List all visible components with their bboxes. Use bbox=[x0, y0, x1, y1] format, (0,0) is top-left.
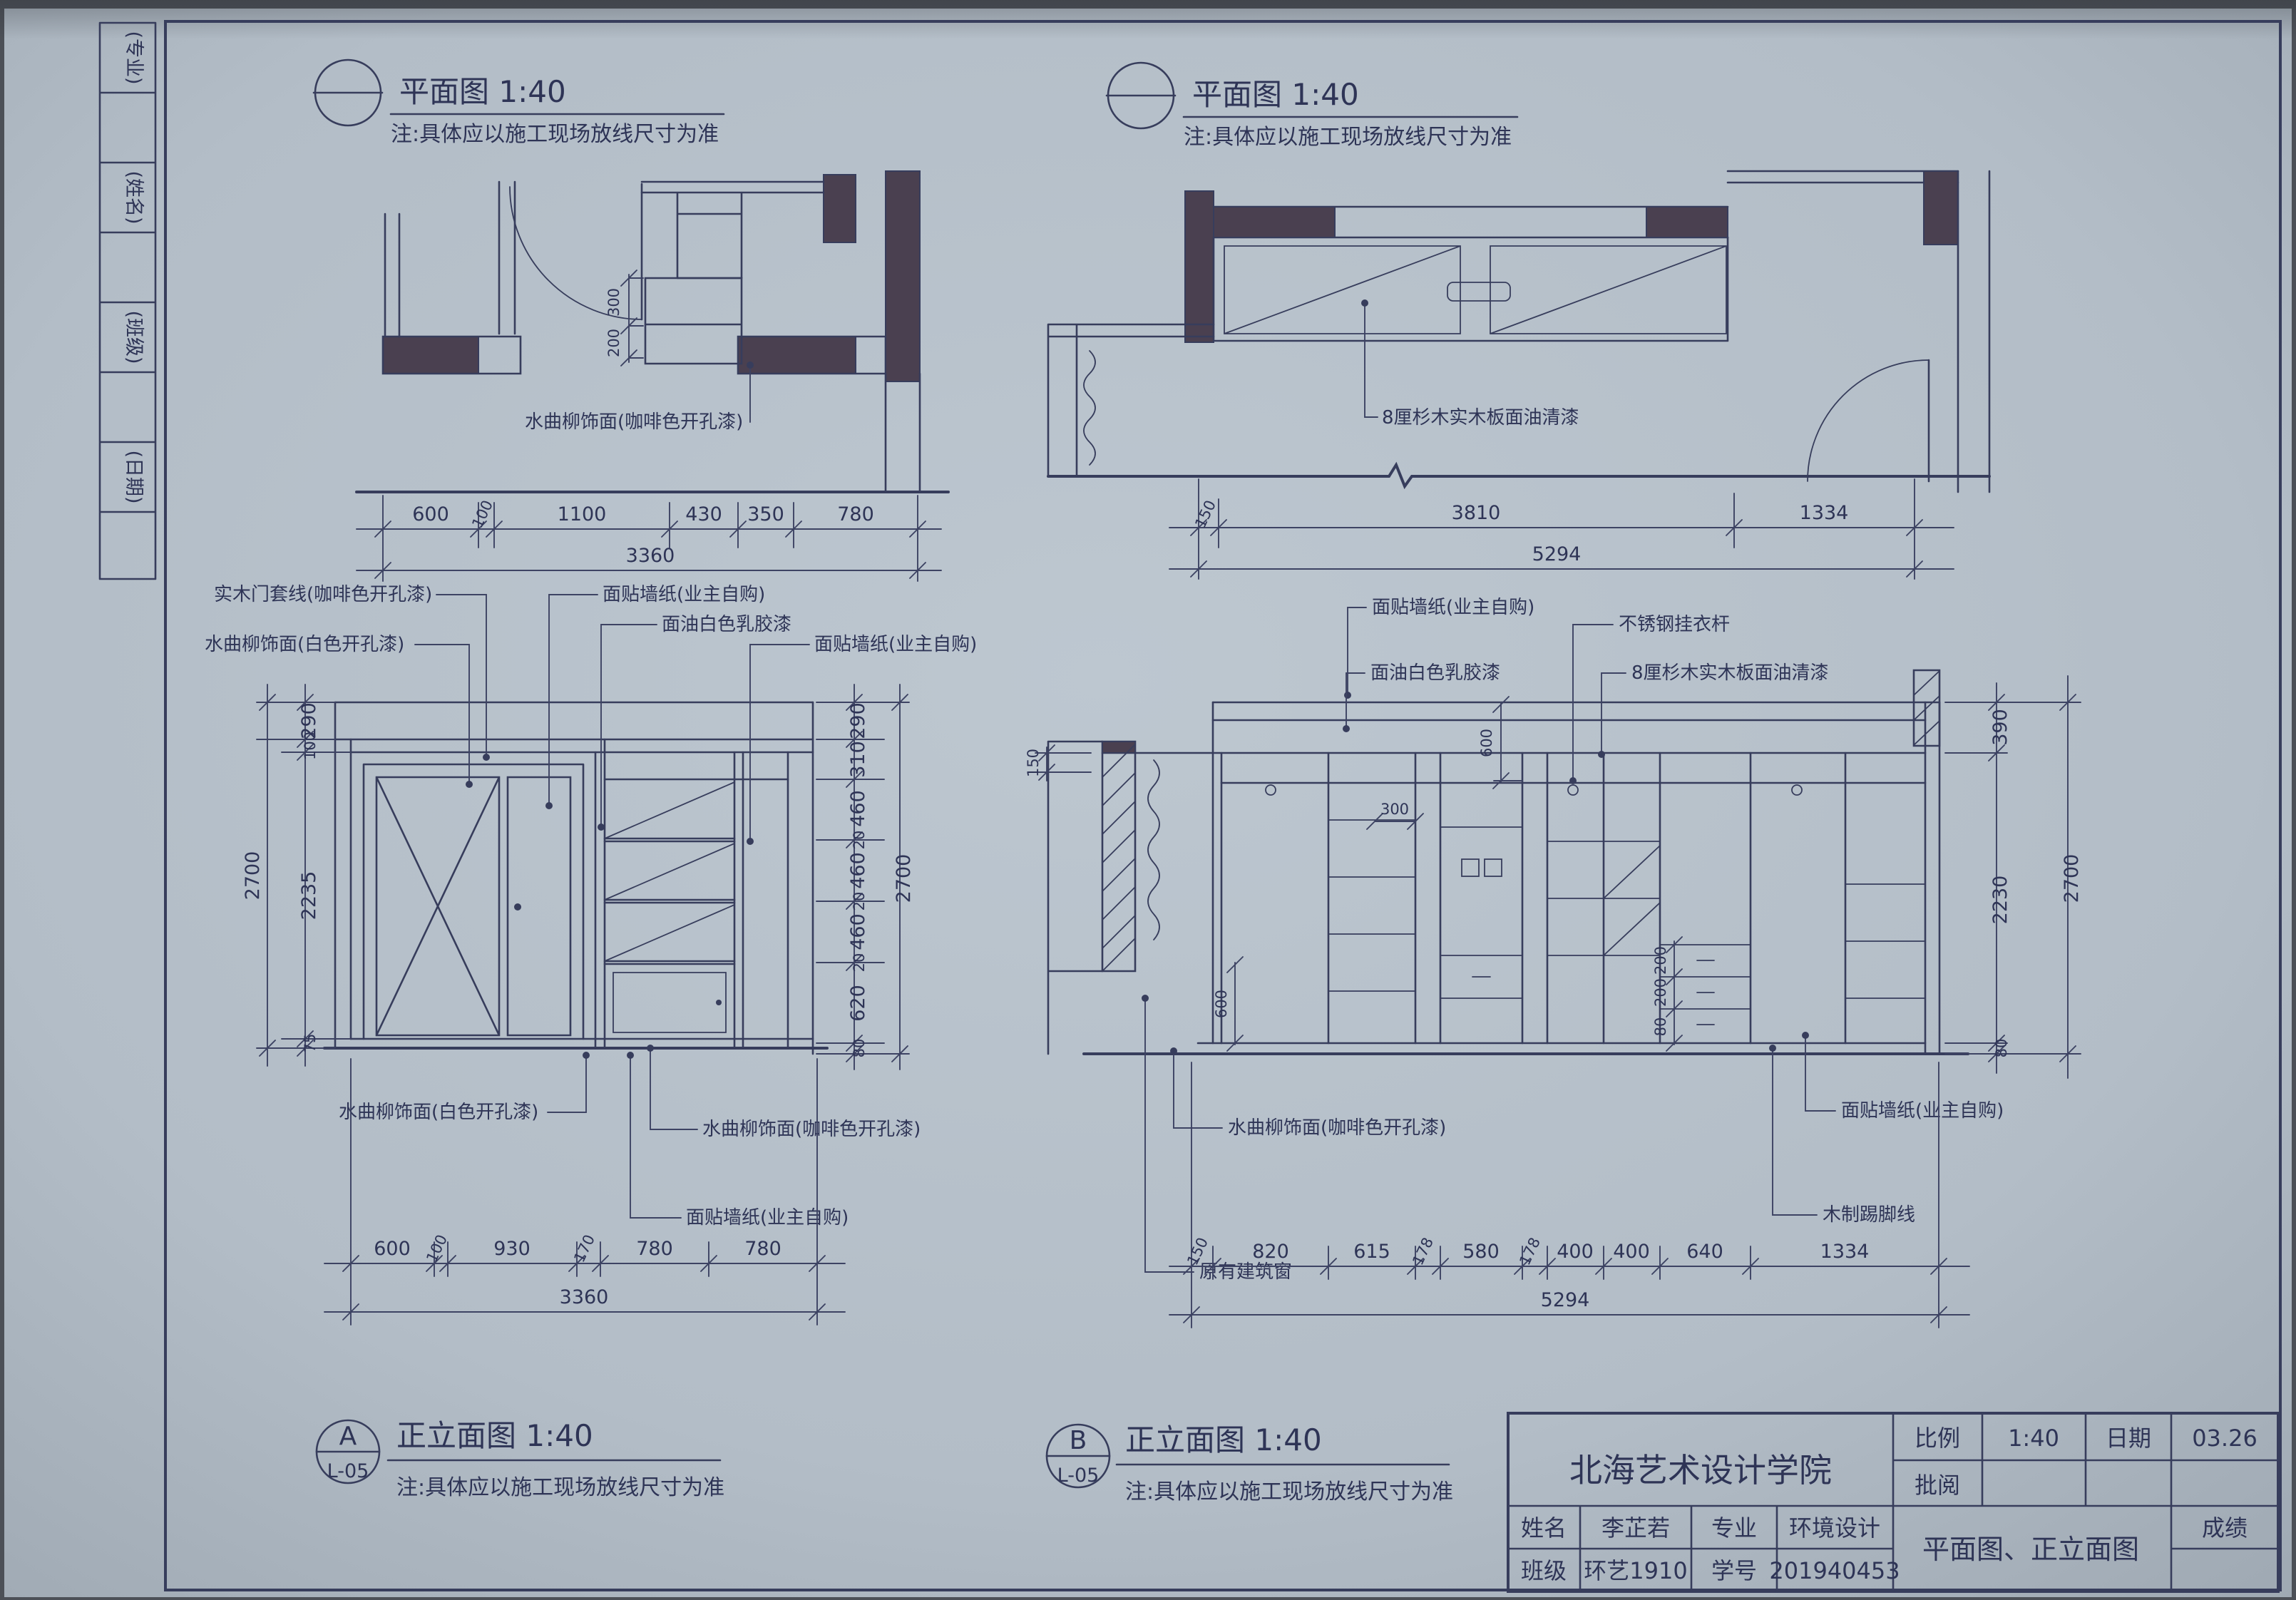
plan-left-callout-label: 水曲柳饰面(咖啡色开孔漆) bbox=[525, 411, 743, 433]
callout: 面贴墙纸(业主自购) bbox=[603, 584, 765, 605]
elevation-a-title: 正立面图 1:40 bbox=[396, 1418, 593, 1453]
view-letter: B bbox=[1070, 1426, 1087, 1455]
elevation-b-note: 注:具体应以施工现场放线尺寸为准 bbox=[1125, 1480, 1453, 1504]
dim: 80 bbox=[1993, 1039, 2010, 1058]
dim: 400 bbox=[1613, 1241, 1650, 1263]
elevation-a-note: 注:具体应以施工现场放线尺寸为准 bbox=[396, 1475, 724, 1500]
dim: 615 bbox=[1353, 1241, 1390, 1263]
dim: 350 bbox=[747, 503, 784, 525]
class-label: 班级 bbox=[1521, 1557, 1567, 1584]
sheet-svg: (专业) (姓名) (班级) (日期) 平面图 1:40 注:具体应以施工现场放… bbox=[0, 0, 2296, 1600]
dim: 150 bbox=[1025, 749, 1042, 777]
callout: 面贴墙纸(业主自购) bbox=[686, 1207, 849, 1229]
grade-label: 成绩 bbox=[2202, 1514, 2248, 1542]
dim: 200 bbox=[605, 329, 622, 357]
drawing-sheet-photo: (专业) (姓名) (班级) (日期) 平面图 1:40 注:具体应以施工现场放… bbox=[0, 0, 2296, 1600]
dim: 100 bbox=[302, 732, 319, 760]
dim: 20 bbox=[851, 953, 868, 973]
dim-total: 5294 bbox=[1532, 543, 1582, 565]
dim: 200 bbox=[1652, 978, 1669, 1007]
plan-right-note: 注:具体应以施工现场放线尺寸为准 bbox=[1184, 125, 1512, 150]
sheet-title: 平面图、正立面图 bbox=[1922, 1534, 2139, 1565]
dim: 80 bbox=[851, 1039, 868, 1058]
dim: 640 bbox=[1686, 1241, 1723, 1263]
callout: 8厘杉木实木板面油清漆 bbox=[1631, 662, 1829, 684]
plan-left-title: 平面图 1:40 bbox=[399, 74, 566, 109]
callout: 水曲柳饰面(白色开孔漆) bbox=[339, 1102, 538, 1123]
edge-label-class: (班级) bbox=[123, 310, 145, 364]
dim: 310 bbox=[847, 741, 869, 778]
dim: 620 bbox=[847, 985, 869, 1022]
edge-label-date: (日期) bbox=[123, 450, 145, 503]
plan-right-title: 平面图 1:40 bbox=[1192, 77, 1359, 112]
callout: 面贴墙纸(业主自购) bbox=[814, 634, 977, 655]
plan-right-callout-label: 8厘杉木实木板面油清漆 bbox=[1382, 407, 1579, 429]
dim-total: 2700 bbox=[2061, 854, 2083, 903]
dim-total: 3360 bbox=[626, 545, 675, 567]
scale-label: 比例 bbox=[1915, 1425, 1960, 1452]
callout: 不锈钢挂衣杆 bbox=[1619, 614, 1730, 635]
dim-total: 2700 bbox=[893, 854, 915, 903]
dim: 460 bbox=[847, 913, 869, 950]
student-id-label: 学号 bbox=[1711, 1557, 1757, 1584]
school-name: 北海艺术设计学院 bbox=[1569, 1451, 1832, 1489]
callout: 实木门套线(咖啡色开孔漆) bbox=[214, 584, 432, 605]
dim: 300 bbox=[605, 288, 622, 317]
dim-total: 3360 bbox=[560, 1286, 609, 1308]
edge-label-name: (姓名) bbox=[123, 170, 145, 224]
dim: 300 bbox=[1380, 801, 1409, 818]
name-value: 李芷若 bbox=[1601, 1514, 1670, 1542]
callout: 水曲柳饰面(白色开孔漆) bbox=[205, 634, 404, 655]
dim: 600 bbox=[1213, 990, 1230, 1018]
dim: 430 bbox=[685, 503, 722, 525]
callout: 木制踢脚线 bbox=[1823, 1204, 1915, 1226]
dim-total: 2700 bbox=[242, 851, 264, 901]
scale-value: 1:40 bbox=[2008, 1425, 2059, 1452]
dim: 2230 bbox=[1989, 876, 2011, 925]
callout: 面贴墙纸(业主自购) bbox=[1841, 1100, 2004, 1122]
elevation-b-title: 正立面图 1:40 bbox=[1125, 1422, 1322, 1457]
dim: 600 bbox=[374, 1238, 411, 1260]
dim: 200 bbox=[1652, 946, 1669, 975]
date-value: 03.26 bbox=[2192, 1425, 2257, 1452]
callout: 面油白色乳胶漆 bbox=[662, 614, 791, 635]
dim: 3810 bbox=[1452, 502, 1501, 524]
dim: 780 bbox=[744, 1238, 781, 1260]
dim: 2235 bbox=[298, 871, 320, 920]
dim: 1334 bbox=[1820, 1241, 1870, 1263]
review-label: 批阅 bbox=[1915, 1472, 1960, 1499]
callout: 面贴墙纸(业主自购) bbox=[1372, 597, 1534, 618]
date-label: 日期 bbox=[2106, 1425, 2151, 1452]
callout: 水曲柳饰面(咖啡色开孔漆) bbox=[1228, 1117, 1446, 1139]
plan-left-note: 注:具体应以施工现场放线尺寸为准 bbox=[391, 122, 719, 147]
dim: 600 bbox=[412, 503, 449, 525]
dim: 600 bbox=[1478, 729, 1495, 757]
dim: 780 bbox=[636, 1238, 673, 1260]
callout: 面油白色乳胶漆 bbox=[1370, 662, 1500, 684]
dim: 780 bbox=[837, 503, 874, 525]
major-label: 专业 bbox=[1711, 1514, 1757, 1542]
student-id-value: 201940453 bbox=[1769, 1557, 1900, 1584]
dim: 290 bbox=[847, 702, 869, 739]
name-label: 姓名 bbox=[1521, 1514, 1567, 1542]
view-letter: A bbox=[339, 1422, 357, 1451]
dim: 400 bbox=[1557, 1241, 1594, 1263]
dim: 20 bbox=[851, 892, 868, 911]
edge-label-major: (专业) bbox=[123, 31, 145, 84]
dim: 460 bbox=[847, 790, 869, 827]
dim: 75 bbox=[302, 1034, 319, 1053]
major-value: 环境设计 bbox=[1789, 1514, 1880, 1542]
class-value: 环艺1910 bbox=[1584, 1557, 1687, 1584]
view-sheet-ref: L-05 bbox=[1057, 1465, 1100, 1487]
dim: 930 bbox=[493, 1238, 531, 1260]
callout: 水曲柳饰面(咖啡色开孔漆) bbox=[702, 1119, 921, 1140]
dim: 580 bbox=[1462, 1241, 1500, 1263]
dim: 460 bbox=[847, 852, 869, 889]
dim: 80 bbox=[1652, 1017, 1669, 1037]
dim: 20 bbox=[851, 831, 868, 850]
dim: 820 bbox=[1252, 1241, 1289, 1263]
dim-total: 5294 bbox=[1541, 1289, 1590, 1311]
dim: 390 bbox=[1989, 709, 2011, 746]
dim: 1100 bbox=[558, 503, 607, 525]
view-sheet-ref: L-05 bbox=[327, 1460, 369, 1482]
dim: 1334 bbox=[1800, 502, 1849, 524]
